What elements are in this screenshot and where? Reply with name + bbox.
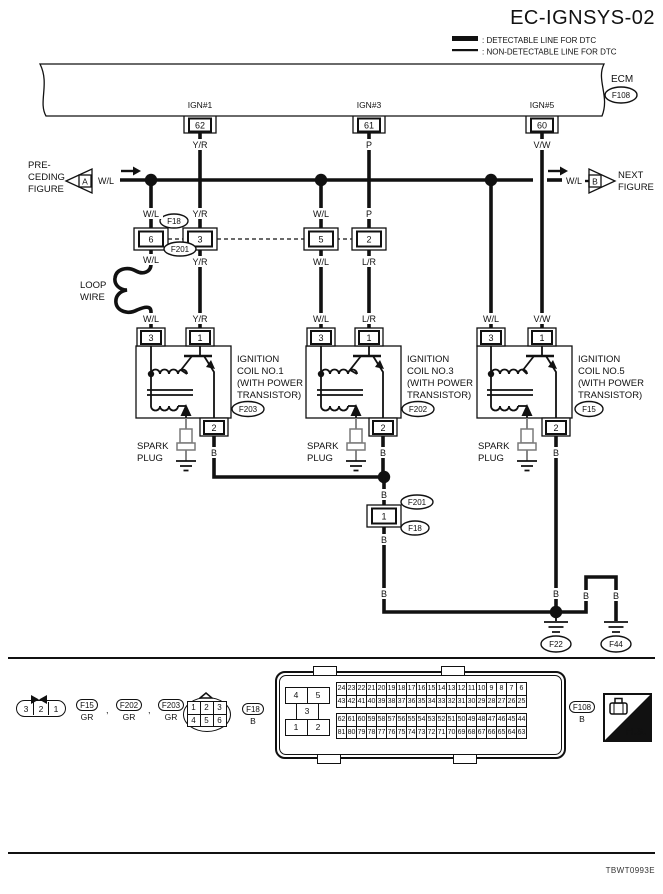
svg-text:3: 3 bbox=[488, 333, 493, 343]
ecm-pin-grid: 2423222120191817161514131211109876434241… bbox=[337, 682, 527, 739]
section-divider-top bbox=[8, 657, 655, 659]
svg-text:(WITH POWER: (WITH POWER bbox=[578, 378, 644, 389]
secondary-winding bbox=[321, 406, 348, 411]
svg-text:SPARK: SPARK bbox=[478, 441, 510, 452]
svg-text:SPARK: SPARK bbox=[307, 441, 339, 452]
svg-text:62: 62 bbox=[195, 121, 205, 131]
svg-text:WIRE: WIRE bbox=[80, 292, 105, 303]
svg-text:H.S.: H.S. bbox=[626, 726, 647, 738]
ecm-grid-row: 2423222120191817161514131211109876 bbox=[337, 682, 527, 696]
svg-text:Y/R: Y/R bbox=[192, 209, 208, 219]
ecm-grid-cell: 25 bbox=[516, 695, 527, 709]
svg-text:W/L: W/L bbox=[483, 314, 499, 324]
connector-tag-f18-top: F18 bbox=[160, 214, 188, 228]
svg-text:PLUG: PLUG bbox=[137, 453, 163, 464]
ground-f22: F22 bbox=[541, 612, 571, 652]
svg-text:PLUG: PLUG bbox=[307, 453, 333, 464]
svg-text:B: B bbox=[381, 589, 387, 599]
svg-text:L/R: L/R bbox=[362, 314, 377, 324]
svg-text:F15: F15 bbox=[582, 405, 596, 414]
connector-tab bbox=[453, 754, 477, 764]
svg-text:B: B bbox=[553, 448, 559, 458]
flow-arrow-icon bbox=[560, 167, 568, 176]
coil-core bbox=[147, 390, 193, 395]
inline-connector-pin5: 5 bbox=[304, 228, 338, 250]
keying-notch-icon bbox=[199, 692, 213, 699]
ecm-grid-cell: 44 bbox=[516, 713, 527, 727]
svg-text:F18: F18 bbox=[167, 217, 181, 226]
connector-cell: 1 bbox=[48, 702, 63, 715]
svg-text:B: B bbox=[613, 591, 619, 601]
svg-text:61: 61 bbox=[364, 121, 374, 131]
wire-b-mid bbox=[384, 527, 556, 612]
ignition-coil-3: 3 1 2 IGNITION COIL NO.3 (WITH POWER TRA… bbox=[306, 328, 473, 471]
svg-text:B: B bbox=[381, 490, 387, 500]
svg-text:3: 3 bbox=[148, 333, 153, 343]
svg-text:IGNITION: IGNITION bbox=[237, 354, 279, 365]
wire-label-wl: W/L bbox=[566, 176, 582, 186]
svg-text:Y/R: Y/R bbox=[192, 140, 208, 150]
svg-text:COIL NO.3: COIL NO.3 bbox=[407, 366, 454, 377]
next-figure-ref: W/L B NEXT FIGURE bbox=[548, 167, 654, 194]
coil-core bbox=[317, 390, 363, 395]
svg-text:F201: F201 bbox=[408, 498, 427, 507]
legend-non-detectable-label: : NON-DETECTABLE LINE FOR DTC bbox=[482, 48, 617, 57]
svg-text:F108: F108 bbox=[612, 91, 631, 100]
svg-text:P: P bbox=[366, 140, 372, 150]
svg-text:W/L: W/L bbox=[143, 209, 159, 219]
svg-text:Y/R: Y/R bbox=[192, 314, 208, 324]
svg-text:LOOP: LOOP bbox=[80, 280, 106, 291]
ecm-band-outline bbox=[40, 64, 605, 116]
svg-text:B: B bbox=[211, 448, 217, 458]
wire-color-labels: Y/R P V/W W/L Y/R W/L P W/L Y/R W/L L/R … bbox=[139, 139, 622, 601]
svg-text:B: B bbox=[553, 589, 559, 599]
svg-text:L/R: L/R bbox=[362, 257, 377, 267]
svg-text:F22: F22 bbox=[549, 640, 563, 649]
ground-icon bbox=[346, 461, 366, 471]
svg-text:2: 2 bbox=[211, 423, 216, 433]
svg-text:PRE-: PRE- bbox=[28, 160, 51, 171]
svg-text:B: B bbox=[583, 591, 589, 601]
junction-dot bbox=[315, 174, 327, 186]
mid-connector-pin1: 1 F201 F18 bbox=[367, 495, 433, 535]
keying-bowtie-icon bbox=[31, 695, 47, 704]
ecm-label: ECM bbox=[611, 74, 633, 85]
connector-tab bbox=[317, 754, 341, 764]
svg-text:W/L: W/L bbox=[143, 314, 159, 324]
junction-dot bbox=[485, 174, 497, 186]
loop-wire-symbol bbox=[115, 264, 151, 312]
secondary-winding bbox=[151, 406, 178, 411]
svg-text:TRANSISTOR): TRANSISTOR) bbox=[578, 390, 642, 401]
svg-text:IGNITION: IGNITION bbox=[578, 354, 620, 365]
connector-face-6pin: 1 2 3 4 5 6 bbox=[183, 697, 231, 732]
svg-text:3: 3 bbox=[197, 235, 202, 245]
svg-text:2: 2 bbox=[553, 423, 558, 433]
svg-text:V/W: V/W bbox=[534, 314, 552, 324]
hs-mark-icon: H.S. bbox=[603, 693, 653, 743]
svg-text:B: B bbox=[381, 535, 387, 545]
svg-text:3: 3 bbox=[318, 333, 323, 343]
inline-connector-pin2: 2 bbox=[352, 228, 386, 250]
secondary-winding bbox=[491, 406, 518, 411]
tag-f202: F202 GR bbox=[110, 699, 148, 722]
svg-text:F44: F44 bbox=[609, 640, 623, 649]
svg-text:2: 2 bbox=[380, 423, 385, 433]
svg-text:(WITH POWER: (WITH POWER bbox=[237, 378, 303, 389]
ground-icon bbox=[517, 461, 537, 471]
inline-connector-pin6: 6 bbox=[134, 228, 168, 250]
svg-text:6: 6 bbox=[148, 235, 153, 245]
svg-text:60: 60 bbox=[537, 121, 547, 131]
svg-text:PLUG: PLUG bbox=[478, 453, 504, 464]
svg-text:2: 2 bbox=[366, 235, 371, 245]
ecm-grid-row: 62616059585756555453525150494847464544 bbox=[337, 713, 527, 727]
ecm-grid-cell: 63 bbox=[516, 726, 527, 740]
connector-tab bbox=[441, 666, 465, 676]
svg-text:TRANSISTOR): TRANSISTOR) bbox=[407, 390, 471, 401]
svg-text:W/L: W/L bbox=[143, 255, 159, 265]
svg-text:FIGURE: FIGURE bbox=[28, 184, 64, 195]
figure-code: TBWT0993E bbox=[560, 866, 655, 875]
ecm-grid-row: 81807978777675747372717069686766656463 bbox=[337, 726, 527, 740]
spark-plug-5: SPARK PLUG bbox=[478, 418, 537, 471]
ecm-grid-cell: 6 bbox=[516, 682, 527, 696]
ecm-grid-row: 43424140393837363534333231302928272625 bbox=[337, 695, 527, 709]
svg-text:B: B bbox=[380, 448, 386, 458]
svg-text:FIGURE: FIGURE bbox=[618, 182, 654, 193]
loop-wire-label: LOOP WIRE bbox=[80, 280, 106, 303]
svg-text:W/L: W/L bbox=[313, 209, 329, 219]
primary-winding bbox=[491, 370, 527, 375]
preceding-figure-ref: PRE- CEDING FIGURE A W/L bbox=[28, 160, 141, 195]
coil-connector-tags: F15 GR , F202 GR , F203 GR bbox=[68, 699, 190, 722]
svg-text:F203: F203 bbox=[239, 405, 258, 414]
svg-text:B: B bbox=[592, 177, 598, 187]
ground-icon bbox=[544, 622, 568, 632]
wire-label-wl: W/L bbox=[98, 176, 114, 186]
ground-icon bbox=[176, 461, 196, 471]
svg-text:A: A bbox=[82, 177, 88, 187]
svg-text:IGN#3: IGN#3 bbox=[357, 100, 382, 110]
svg-text:W/L: W/L bbox=[313, 257, 329, 267]
svg-text:F202: F202 bbox=[409, 405, 428, 414]
svg-text:NEXT: NEXT bbox=[618, 170, 644, 181]
spark-plug-1: SPARK PLUG bbox=[137, 418, 196, 471]
ecm-connector-face: 4 5 3 1 2 242322212019181716151413121110… bbox=[275, 671, 566, 759]
svg-text:IGN#5: IGN#5 bbox=[530, 100, 555, 110]
svg-text:CEDING: CEDING bbox=[28, 172, 65, 183]
svg-text:1: 1 bbox=[197, 333, 202, 343]
svg-text:SPARK: SPARK bbox=[137, 441, 169, 452]
svg-text:(WITH POWER: (WITH POWER bbox=[407, 378, 473, 389]
section-divider-bottom bbox=[8, 852, 655, 854]
junction-dot bbox=[145, 174, 157, 186]
tag-f108: F108 B bbox=[564, 701, 600, 724]
coil-core bbox=[487, 390, 533, 395]
flow-arrow-icon bbox=[133, 167, 141, 176]
svg-text:1: 1 bbox=[381, 512, 386, 522]
svg-text:Y/R: Y/R bbox=[192, 257, 208, 267]
svg-text:COIL NO.1: COIL NO.1 bbox=[237, 366, 284, 377]
svg-text:P: P bbox=[366, 209, 372, 219]
legend-detectable-label: : DETECTABLE LINE FOR DTC bbox=[482, 36, 596, 45]
ecm-connector-left-block: 4 5 3 1 2 bbox=[285, 687, 329, 735]
tag-f18: F18 B bbox=[236, 703, 270, 726]
legend-thin-line-swatch bbox=[452, 49, 478, 51]
svg-text:5: 5 bbox=[318, 235, 323, 245]
svg-text:1: 1 bbox=[539, 333, 544, 343]
spark-plug-3: SPARK PLUG bbox=[307, 418, 366, 471]
page-title: EC-IGNSYS-02 bbox=[510, 7, 655, 29]
svg-text:V/W: V/W bbox=[534, 140, 552, 150]
svg-text:F201: F201 bbox=[171, 245, 190, 254]
svg-text:IGN#1: IGN#1 bbox=[188, 100, 213, 110]
svg-text:COIL NO.5: COIL NO.5 bbox=[578, 366, 625, 377]
svg-text:1: 1 bbox=[366, 333, 371, 343]
svg-text:F18: F18 bbox=[408, 524, 422, 533]
svg-text:TRANSISTOR): TRANSISTOR) bbox=[237, 390, 301, 401]
tag-f15: F15 GR bbox=[68, 699, 106, 722]
diagram-canvas: EC-IGNSYS-02 : DETECTABLE LINE FOR DTC :… bbox=[0, 0, 663, 658]
connector-tab bbox=[313, 666, 337, 676]
svg-text:W/L: W/L bbox=[313, 314, 329, 324]
wiring-diagram-page: EC-IGNSYS-02 : DETECTABLE LINE FOR DTC :… bbox=[0, 0, 663, 894]
connector-tag-f201-top: F201 bbox=[164, 242, 196, 256]
svg-text:IGNITION: IGNITION bbox=[407, 354, 449, 365]
ground-f44: F44 bbox=[601, 622, 631, 652]
ground-icon bbox=[604, 622, 628, 632]
legend-thick-line-swatch bbox=[452, 36, 478, 41]
legend: : DETECTABLE LINE FOR DTC : NON-DETECTAB… bbox=[452, 36, 617, 57]
